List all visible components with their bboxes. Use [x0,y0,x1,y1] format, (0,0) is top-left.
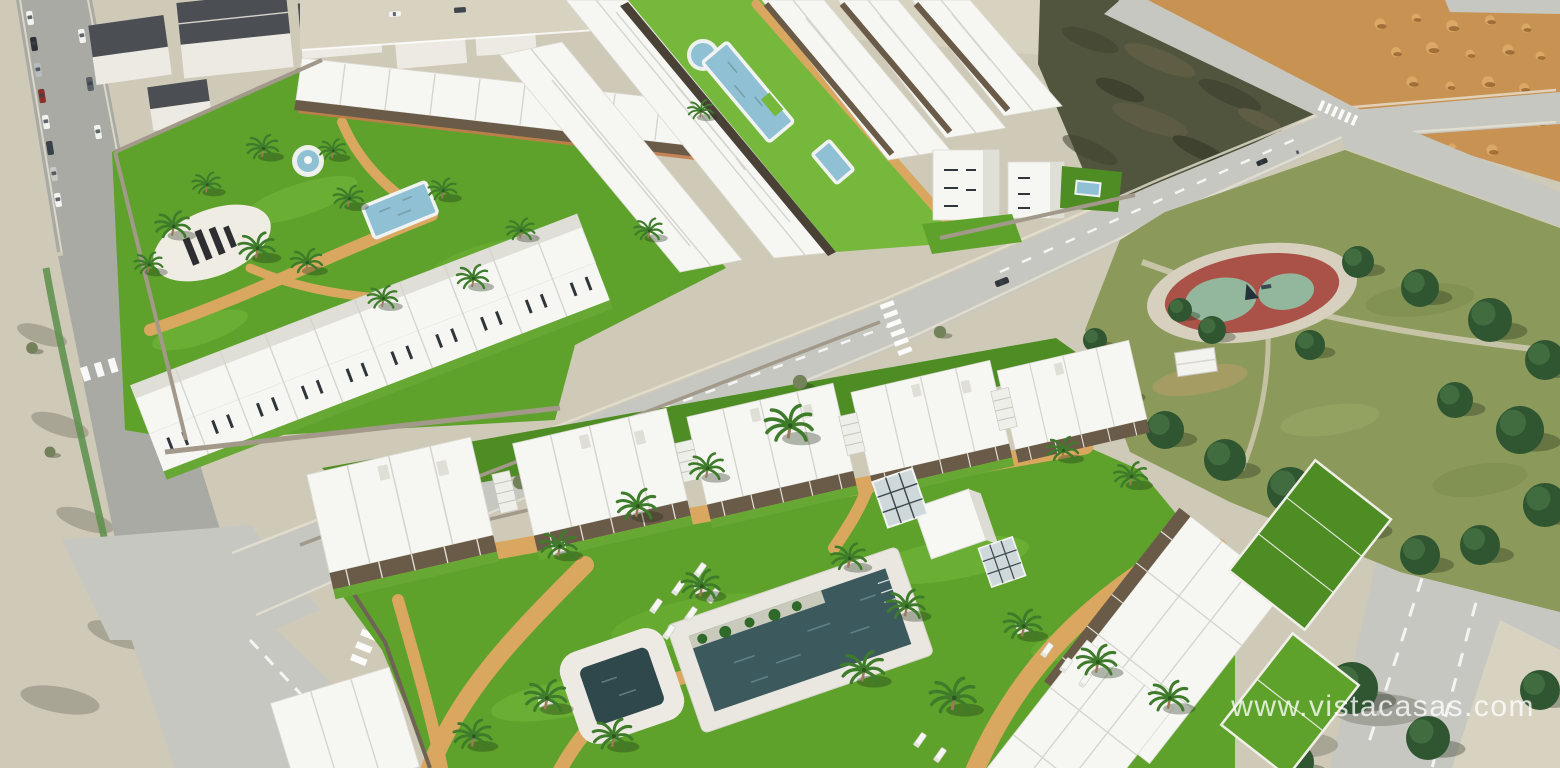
watermark: www.vistacasas.com [1230,690,1535,723]
villa-pool [1075,181,1100,196]
park-kiosk [1175,347,1218,376]
house [88,15,172,85]
scene-canvas: www.vistacasas.com [0,0,1560,768]
parked-car [454,7,466,13]
detached-villa [933,150,999,220]
aerial-render-image: www.vistacasas.com [0,0,1560,768]
watermark-text: www.vistacasas.com [1230,690,1535,723]
top-road [1445,0,1560,14]
house [176,0,293,79]
parked-car [389,11,401,17]
detached-villa [1008,162,1064,218]
fountain-feature [292,145,324,177]
